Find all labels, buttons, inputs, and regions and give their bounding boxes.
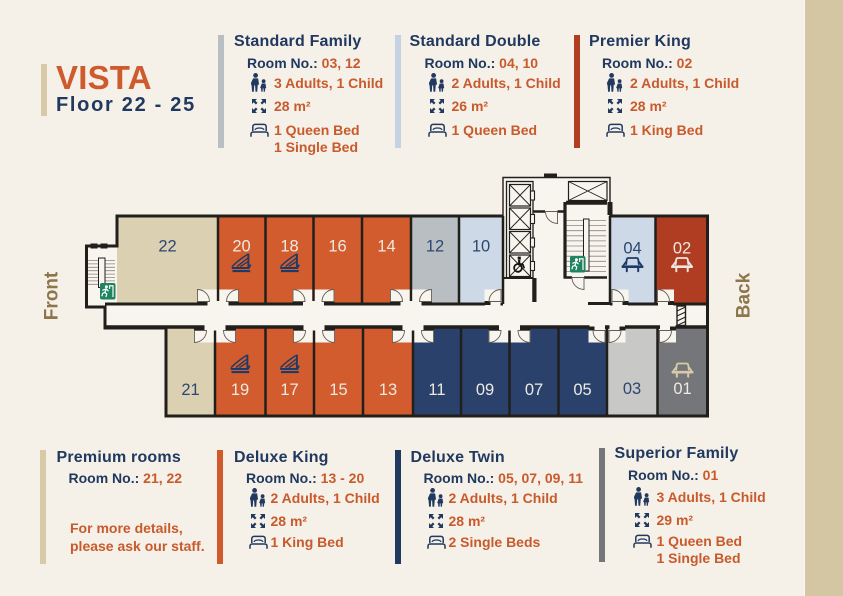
svg-text:Back: Back: [734, 272, 755, 318]
svg-text:17: 17: [280, 381, 298, 399]
svg-text:10: 10: [472, 238, 490, 256]
svg-text:01: 01: [673, 380, 691, 398]
svg-text:09: 09: [476, 381, 494, 399]
svg-text:18: 18: [280, 238, 298, 256]
svg-text:04: 04: [623, 240, 641, 258]
svg-text:02: 02: [673, 240, 691, 258]
svg-text:21: 21: [181, 381, 199, 399]
svg-text:07: 07: [525, 381, 543, 399]
svg-text:20: 20: [232, 238, 250, 256]
svg-text:03: 03: [623, 380, 641, 398]
svg-text:19: 19: [231, 381, 249, 399]
svg-text:16: 16: [328, 238, 346, 256]
svg-text:14: 14: [377, 238, 395, 256]
svg-text:05: 05: [573, 381, 591, 399]
svg-text:11: 11: [428, 381, 445, 399]
svg-text:15: 15: [329, 381, 347, 399]
svg-text:Front: Front: [42, 271, 63, 320]
svg-text:12: 12: [426, 238, 444, 256]
svg-text:22: 22: [158, 238, 176, 256]
svg-text:13: 13: [379, 381, 397, 399]
